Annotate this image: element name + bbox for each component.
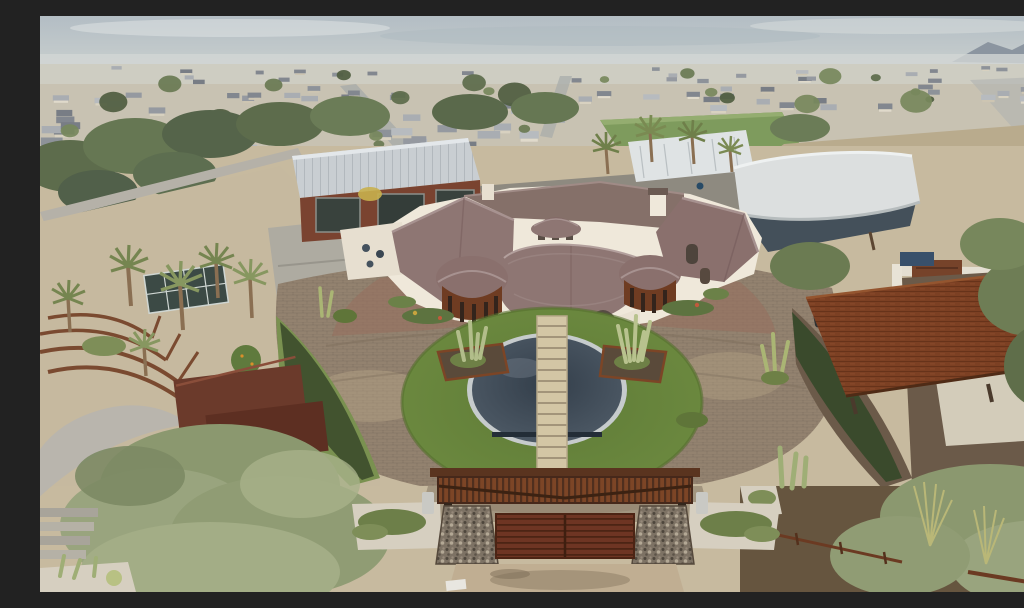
- suburb-house-wall: [309, 91, 320, 93]
- suburb-house: [149, 107, 166, 113]
- barn-accent-shrub: [358, 187, 382, 201]
- suburb-tree: [158, 76, 181, 93]
- suburb-house: [597, 91, 611, 96]
- suburb-house: [780, 102, 795, 108]
- suburb-house: [368, 72, 378, 76]
- shrub: [333, 309, 357, 323]
- suburb-house: [126, 93, 142, 98]
- aerial-photo-canvas: [40, 16, 1024, 592]
- suburb-house: [669, 73, 678, 77]
- suburb-house: [308, 86, 321, 91]
- barn-glass-door: [316, 198, 360, 232]
- suburb-house: [193, 80, 205, 84]
- suburb-house: [981, 66, 990, 70]
- aerial-photo: [40, 16, 1024, 592]
- chimney: [482, 184, 494, 200]
- suburb-house-wall: [181, 73, 191, 75]
- suburb-house: [403, 114, 420, 121]
- suburb-house-wall: [150, 114, 165, 116]
- suburb-house: [652, 67, 660, 71]
- suburb-tree: [61, 124, 79, 137]
- golden-barrel-cactus: [106, 570, 122, 586]
- suburb-house: [918, 85, 933, 90]
- suburb-house-wall: [598, 96, 610, 98]
- suburb-house: [227, 93, 239, 98]
- suburb-house-wall: [762, 92, 774, 94]
- cloud: [380, 26, 820, 46]
- suburb-tree: [705, 88, 717, 97]
- suburb-tree: [265, 79, 283, 92]
- garden-shrubs: [82, 336, 126, 356]
- suburb-house: [572, 78, 582, 82]
- cloud: [70, 19, 390, 37]
- suburb-house: [42, 126, 63, 133]
- suburb-house-wall: [580, 102, 591, 104]
- suburb-house: [56, 110, 72, 116]
- suburb-house: [579, 96, 592, 101]
- suburb-house-wall: [705, 102, 719, 104]
- suburb-tree: [819, 68, 841, 84]
- suburb-house: [256, 71, 264, 75]
- suburb-house: [391, 128, 412, 135]
- gate-lantern: [696, 492, 708, 514]
- suburb-house-wall: [879, 109, 891, 111]
- suburb-house-wall: [54, 101, 68, 103]
- suburb-house: [998, 91, 1010, 96]
- suburb-house: [1020, 96, 1024, 101]
- stepping-path: [537, 316, 567, 492]
- suburb-tree: [462, 74, 486, 91]
- suburb-house-wall: [999, 96, 1009, 98]
- suburb-house-wall: [295, 73, 305, 75]
- suburb-house: [667, 77, 678, 81]
- solar-panel: [900, 252, 934, 266]
- suburb-house: [736, 74, 746, 78]
- arched-window: [700, 268, 710, 284]
- suburb-house-wall: [521, 139, 538, 142]
- suburb-house: [796, 70, 808, 74]
- suburb-tree: [337, 70, 351, 80]
- suburb-house-wall: [243, 101, 253, 103]
- suburb-house: [697, 79, 708, 83]
- suburb-house: [284, 93, 300, 98]
- suburb-tree: [600, 76, 609, 83]
- suburb-tree: [391, 91, 409, 104]
- suburb-house: [248, 93, 262, 98]
- suburb-house: [820, 104, 836, 110]
- suburb-house-wall: [799, 81, 811, 83]
- suburb-house: [807, 77, 816, 81]
- suburb-house-wall: [781, 108, 794, 110]
- suburb-house-wall: [573, 83, 581, 85]
- patio-umbrella: [697, 183, 704, 190]
- suburb-house: [478, 131, 501, 139]
- suburb-tree: [720, 92, 735, 103]
- suburb-house: [643, 94, 659, 99]
- address-sign: [446, 579, 467, 591]
- suburb-house-wall: [392, 135, 411, 138]
- chimney: [650, 192, 666, 216]
- suburb-tree: [900, 90, 932, 113]
- suburb-house-wall: [711, 111, 726, 113]
- suburb-tree: [871, 74, 881, 81]
- gabion-pillar-right: [632, 506, 694, 564]
- suburb-house: [928, 90, 940, 95]
- suburb-house: [761, 87, 775, 92]
- gabion-pillar-left: [436, 506, 498, 564]
- suburb-house-wall: [982, 100, 995, 102]
- suburb-house-wall: [797, 74, 807, 76]
- suburb-house: [757, 99, 770, 105]
- suburb-house-wall: [249, 98, 261, 100]
- suburb-tree: [99, 92, 127, 112]
- suburb-house: [180, 69, 192, 73]
- suburb-house: [294, 70, 306, 74]
- suburb-house: [348, 91, 360, 96]
- suburb-house-wall: [688, 97, 699, 99]
- chimney-cap: [648, 188, 668, 195]
- suburb-house: [996, 68, 1007, 72]
- suburb-house: [930, 69, 938, 73]
- suburb-house: [721, 87, 732, 92]
- suburb-house: [906, 72, 918, 76]
- suburb-house: [928, 79, 942, 83]
- suburb-house: [878, 104, 892, 110]
- suburb-tree: [680, 68, 694, 78]
- suburb-tree: [519, 125, 530, 133]
- suburb-house: [56, 117, 74, 124]
- suburb-house-wall: [982, 70, 989, 72]
- suburb-tree: [794, 95, 819, 113]
- suburb-house: [53, 95, 69, 100]
- suburb-house: [111, 66, 121, 70]
- suburb-house: [704, 97, 720, 102]
- suburb-house: [710, 105, 727, 111]
- suburb-house: [981, 95, 996, 100]
- suburb-tree: [483, 87, 494, 95]
- suburb-house: [185, 75, 194, 79]
- suburb-house: [687, 92, 700, 97]
- arched-window: [686, 244, 698, 264]
- suburb-house: [301, 96, 318, 101]
- lawn-shrub: [676, 412, 708, 428]
- gate-lantern: [422, 492, 434, 514]
